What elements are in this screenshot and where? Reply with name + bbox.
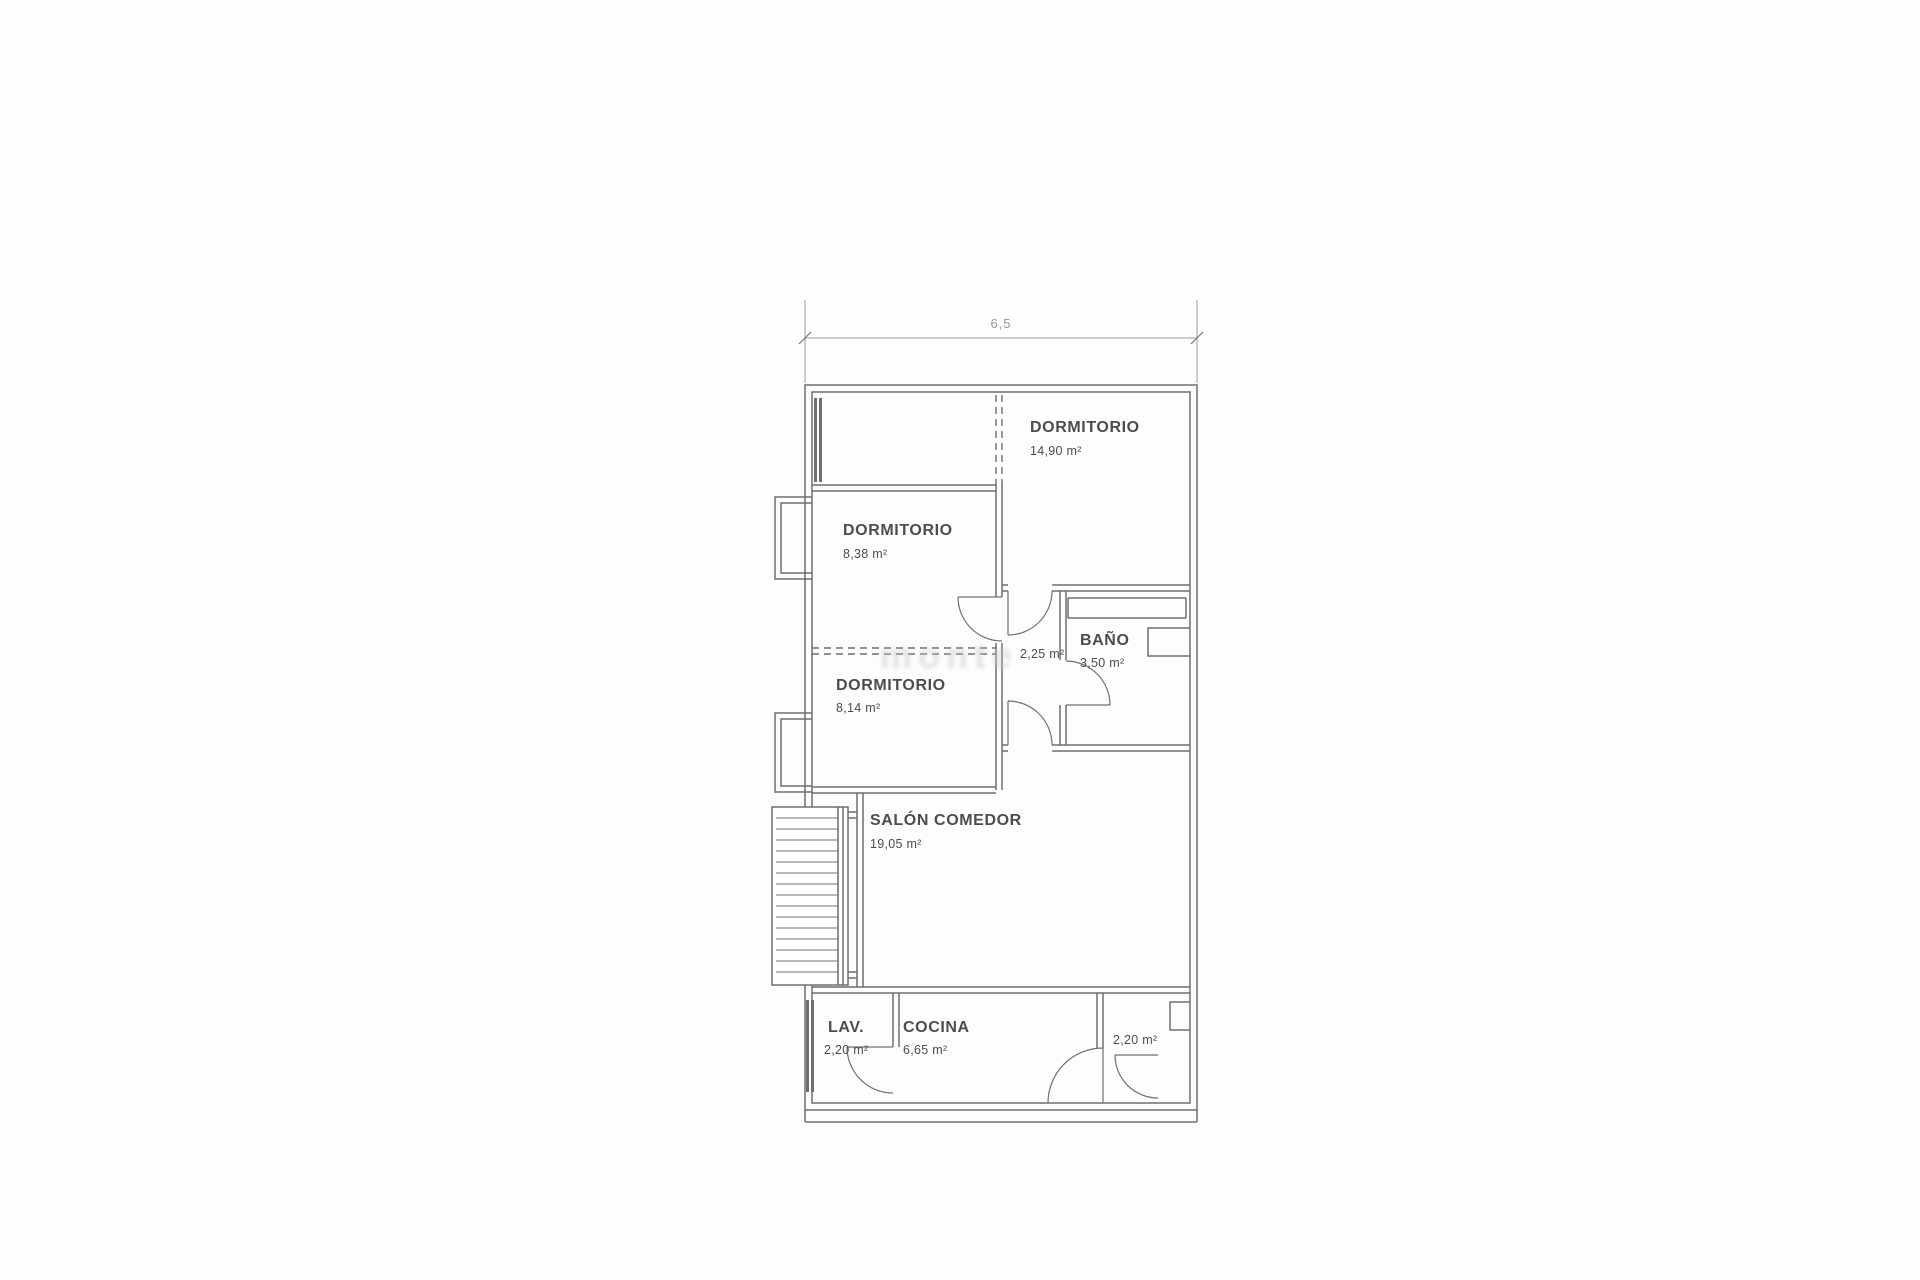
- door-entry-room: [1115, 1055, 1158, 1098]
- room-area-entry: 2,20 m²: [1113, 1033, 1157, 1047]
- room-area-bedroom3: 8,14 m²: [836, 701, 880, 715]
- walls: [775, 385, 1197, 1122]
- dimension-width-label: 6,5: [990, 316, 1011, 331]
- room-label-bedroom2: DORMITORIO: [843, 522, 953, 539]
- room-area-bathroom: 3,50 m²: [1080, 656, 1124, 670]
- floor-plan-svg: 6,5 monte DORMITORIO 14,90 m² DORMITORIO: [0, 0, 1920, 1280]
- page: { "plan": { "dimensions": { "width_label…: [0, 0, 1920, 1280]
- window-bar: [814, 398, 817, 482]
- floorplan-image: 6,5 monte DORMITORIO 14,90 m² DORMITORIO: [0, 0, 1920, 1280]
- window-bar: [811, 1000, 814, 1092]
- room-area-kitchen: 6,65 m²: [903, 1043, 947, 1057]
- door-hall-to-salon: [1008, 701, 1052, 745]
- dimension-top: 6,5: [799, 300, 1203, 383]
- window-bars: [806, 398, 822, 1092]
- door-kitchen: [1048, 1048, 1103, 1103]
- room-area-bedroom1: 14,90 m²: [1030, 444, 1082, 458]
- bay-window-left-lower: [775, 713, 812, 792]
- room-label-laundry: LAV.: [828, 1019, 864, 1036]
- bay-window-left-upper: [775, 497, 812, 579]
- wall-lines: [805, 385, 1197, 1122]
- watermark-text: monte: [880, 635, 1018, 676]
- room-area-living-dining: 19,05 m²: [870, 837, 922, 851]
- dimension-line: [805, 300, 1197, 383]
- room-area-bedroom2: 8,38 m²: [843, 547, 887, 561]
- room-area-laundry: 2,20 m²: [824, 1043, 868, 1057]
- room-label-kitchen: COCINA: [903, 1019, 970, 1036]
- window-bar: [806, 1000, 809, 1092]
- window-bar: [819, 398, 822, 482]
- room-label-bedroom1: DORMITORIO: [1030, 419, 1140, 436]
- room-area-hall: 2,25 m²: [1020, 647, 1064, 661]
- staircase: [772, 807, 848, 985]
- room-label-living-dining: SALÓN COMEDOR: [870, 810, 1022, 829]
- door-hall-to-bedroom1: [1008, 591, 1052, 635]
- room-label-bathroom: BAÑO: [1080, 629, 1130, 649]
- stair-outline: [772, 807, 848, 985]
- room-label-bedroom3: DORMITORIO: [836, 677, 946, 694]
- room-labels: DORMITORIO 14,90 m² DORMITORIO 8,38 m² D…: [824, 419, 1157, 1057]
